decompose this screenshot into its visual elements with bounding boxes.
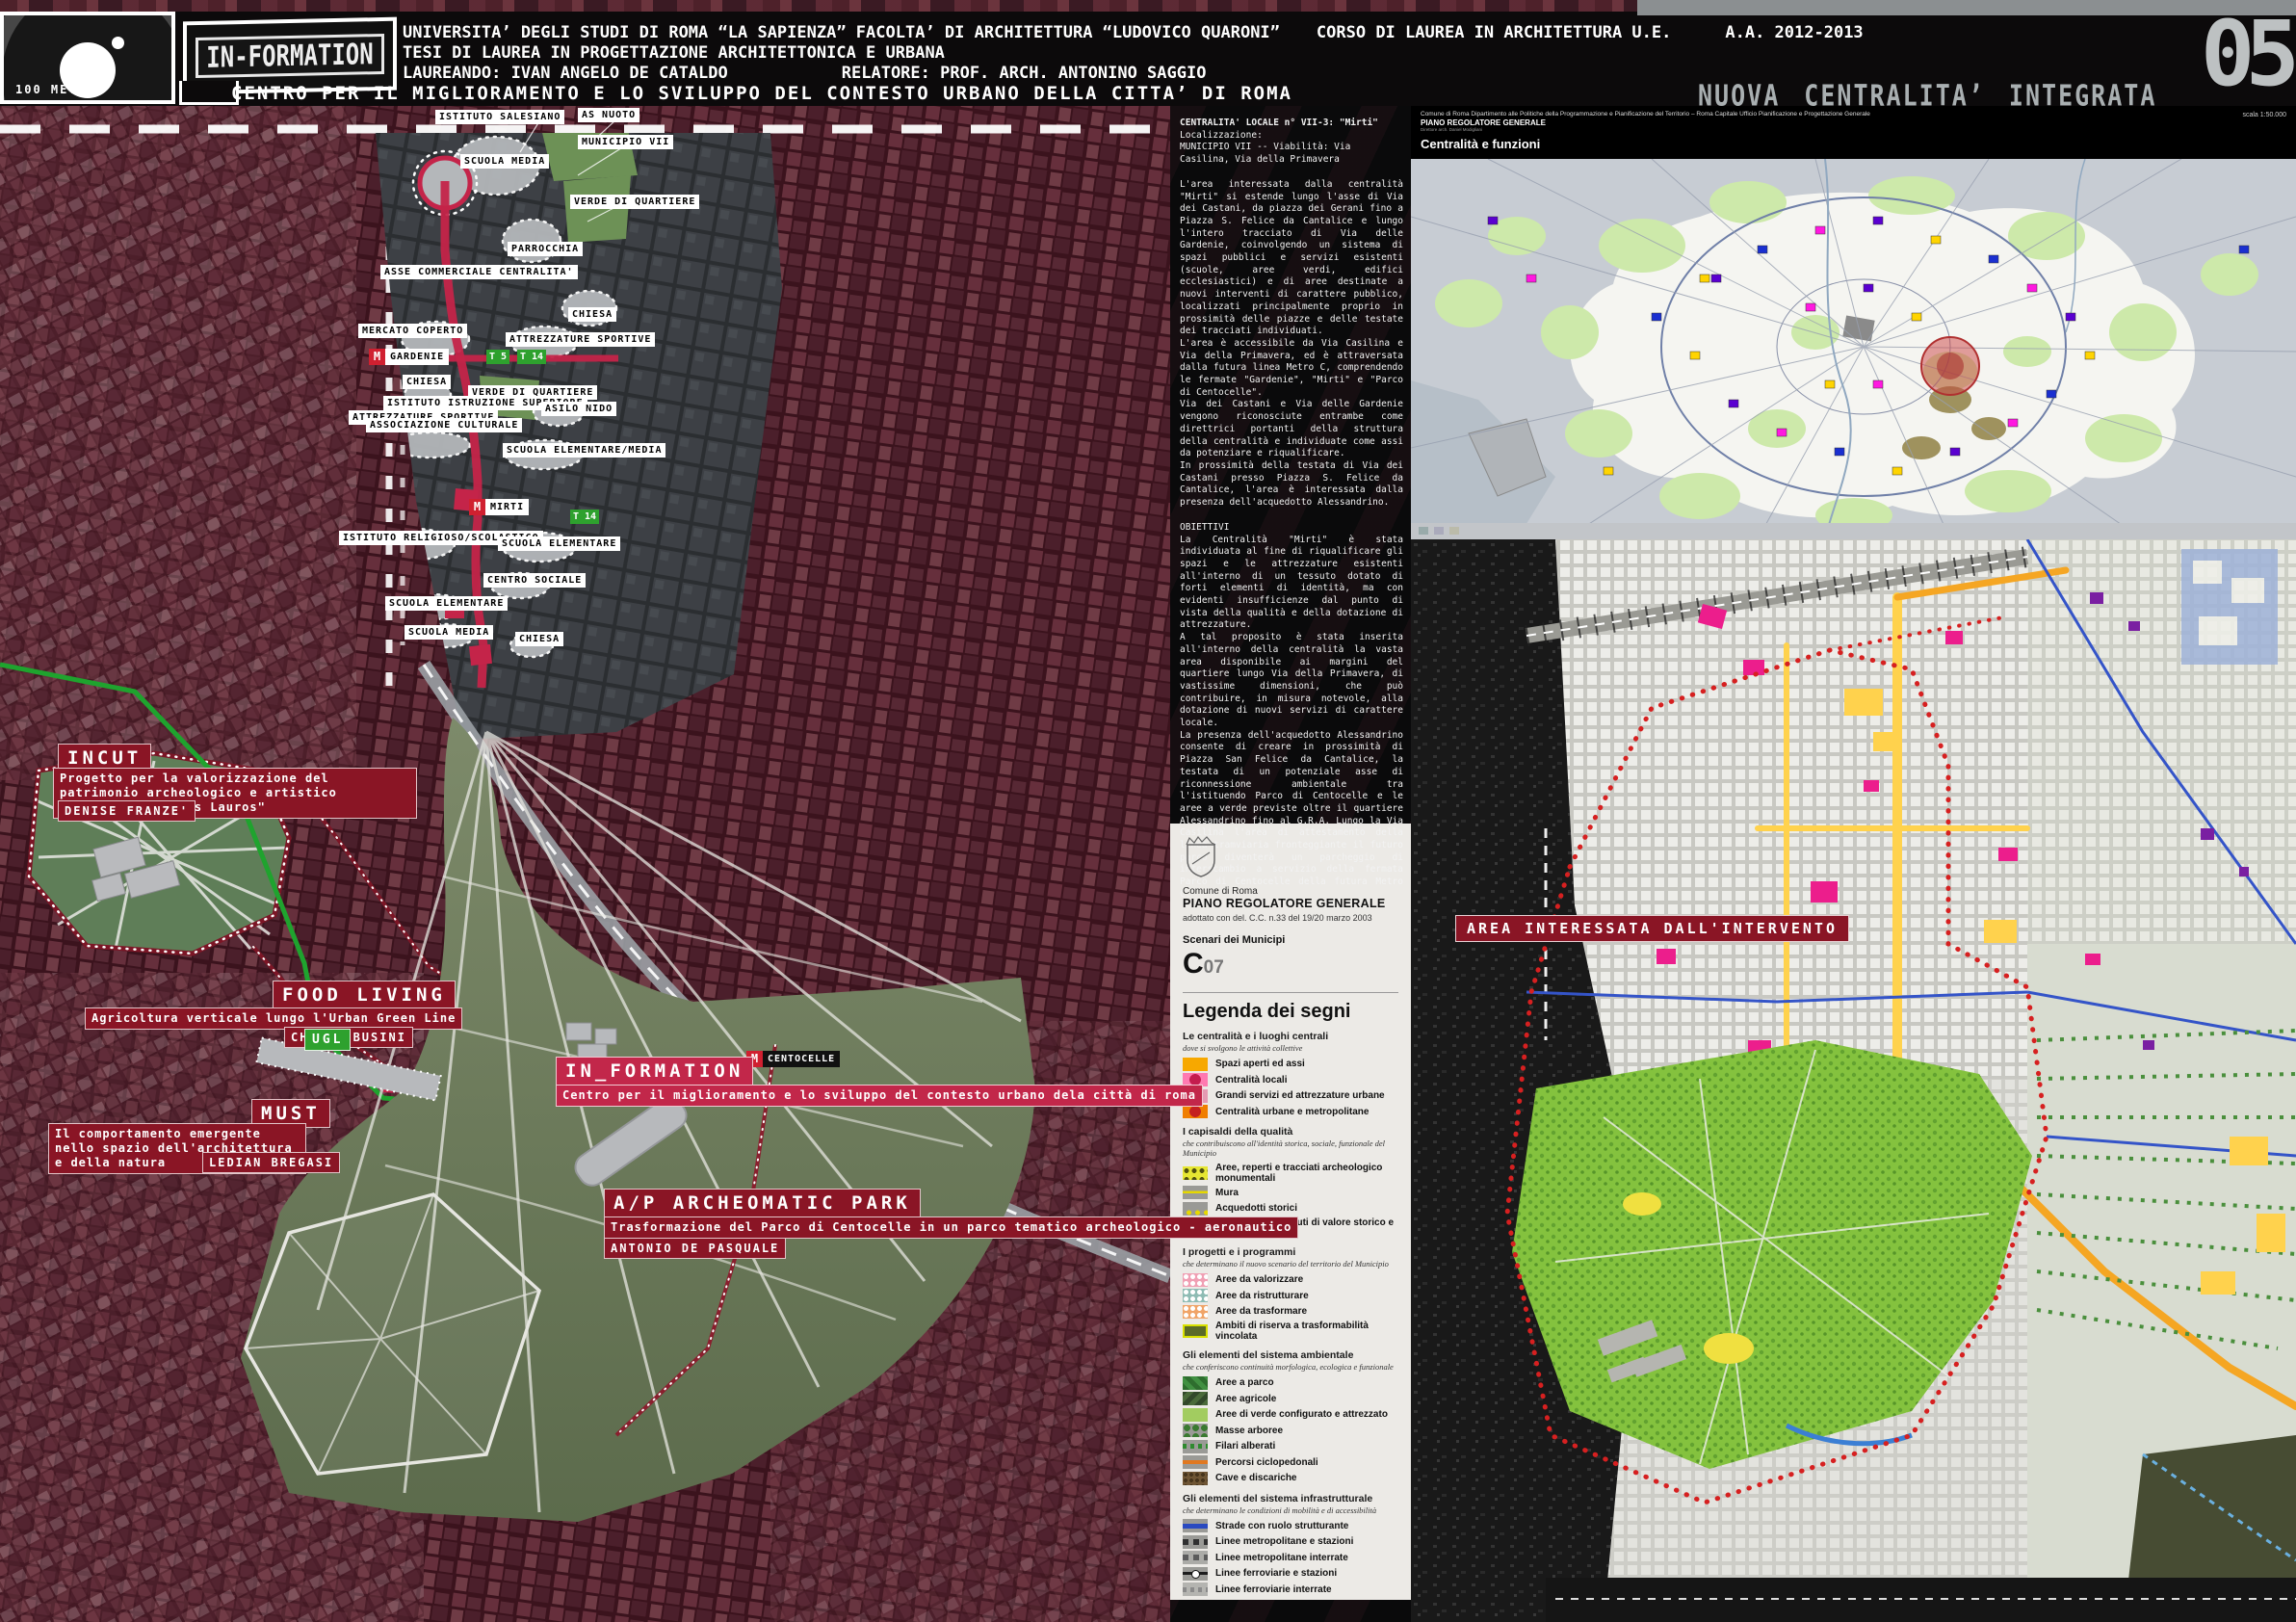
description-paragraph: L'area interessata dalla centralità "Mir… — [1180, 179, 1403, 338]
description-paragraph: L'area è accessibile da Via Casilina e V… — [1180, 338, 1403, 400]
intervention-map-panel: AREA INTERESSATA DALL'INTERVENTO — [1411, 539, 2296, 1622]
legend-label: Aree da valorizzare — [1215, 1274, 1303, 1285]
municipio-line: MUNICIPIO VII -- Viabilità: Via Casilina… — [1180, 142, 1403, 166]
legend-row: Linee metropolitane e stazioni — [1183, 1535, 1398, 1549]
facility-label: SCUOLA ELEMENTARE — [498, 536, 620, 551]
legend-row: Grandi servizi ed attrezzature urbane — [1183, 1089, 1398, 1103]
prg-adoption-note: adottato con del. C.C. n.33 del 19/20 ma… — [1183, 913, 1398, 923]
facility-label: ASSOCIAZIONE CULTURALE — [366, 418, 522, 432]
legend-label: Linee ferroviarie e stazioni — [1215, 1568, 1337, 1579]
tram-stop-marker: T 5 — [486, 350, 509, 364]
legend-label: Aree, reperti e tracciati archeologico m… — [1215, 1163, 1398, 1184]
facility-label: PARROCCHIA — [508, 242, 583, 256]
map-scale-label: 100 METRI — [15, 83, 95, 96]
project-label: UGL — [304, 1029, 351, 1051]
legend-swatch — [1183, 1455, 1208, 1469]
legend-row: Aree da ristrutturare — [1183, 1289, 1398, 1302]
university-title: UNIVERSITA’ DEGLI STUDI DI ROMA “LA SAPI… — [403, 23, 1280, 43]
metro-station-name: GARDENIE — [385, 349, 449, 365]
mirti-highlight — [1921, 337, 1979, 395]
legend-group-subtitle: che determinano il nuovo scenario del te… — [1183, 1259, 1398, 1269]
legend-swatch — [1183, 1105, 1208, 1118]
legend-swatch — [1183, 1166, 1208, 1180]
description-paragraph: La Centralità "Mirti" è stata individuat… — [1180, 535, 1403, 633]
facility-label: MERCATO COPERTO — [358, 324, 467, 338]
legend-label: Masse arboree — [1215, 1426, 1283, 1436]
legend-group-title: I progetti e i programmi — [1183, 1246, 1398, 1258]
legend-label: Mura — [1215, 1188, 1239, 1198]
legend-swatch — [1183, 1472, 1208, 1485]
facility-label: SCUOLA MEDIA — [404, 625, 493, 640]
facility-label: CHIESA — [515, 632, 563, 646]
legend-row: Spazi aperti ed assi — [1183, 1058, 1398, 1071]
legend-row: I capisaldi della qualità che contribuis… — [1183, 1126, 1398, 1160]
facility-label: MUNICIPIO VII — [578, 135, 673, 149]
right-maps-column: Comune di Roma Dipartimento alle Politic… — [1411, 106, 2296, 1622]
academic-year: A.A. 2012-2013 — [1725, 23, 1863, 43]
legend-label: Cave e discariche — [1215, 1473, 1297, 1483]
masterplan-map: ISTITUTO SALESIANOAS NUOTOMUNICIPIO VIIS… — [0, 106, 1170, 1622]
legend-label: Linee metropolitane e stazioni — [1215, 1536, 1353, 1547]
information-logo-text: IN-FORMATION — [206, 38, 373, 75]
header-text: UNIVERSITA’ DEGLI STUDI DI ROMA “LA SAPI… — [403, 23, 2088, 84]
legend-swatch — [1183, 1058, 1208, 1071]
facility-label: VERDE DI QUARTIERE — [570, 195, 699, 209]
legend-row: Linee metropolitane interrate — [1183, 1551, 1398, 1564]
legend-label: Linee metropolitane interrate — [1215, 1553, 1348, 1563]
map-footer-strip — [1411, 523, 2296, 539]
prg-legend-panel: Comune di Roma PIANO REGOLATORE GENERALE… — [1170, 824, 1411, 1600]
legend-group-title: I capisaldi della qualità — [1183, 1126, 1398, 1138]
project-label: ANTONIO DE PASQUALE — [604, 1238, 786, 1259]
legend-swatch — [1183, 1289, 1208, 1302]
legend-group-subtitle: dove si svolgono le attività collettive — [1183, 1043, 1398, 1053]
legend-row: Filari alberati — [1183, 1440, 1398, 1453]
metro-m-icon: M — [369, 349, 385, 365]
legend-row: Aree, reperti e tracciati archeologico m… — [1183, 1163, 1398, 1184]
legend-row: Linee ferroviarie e stazioni — [1183, 1567, 1398, 1581]
project-label: IN_FORMATION — [556, 1057, 753, 1086]
metro-station-name: MIRTI — [485, 499, 529, 515]
project-label: Trasformazione del Parco di Centocelle i… — [604, 1216, 1298, 1239]
facility-label: CHIESA — [403, 375, 451, 389]
legend-row: Ambiti di riserva a trasformabilità vinc… — [1183, 1321, 1398, 1342]
facility-label: SCUOLA ELEMENTARE — [385, 596, 508, 611]
legend-row: Cave e discariche — [1183, 1472, 1398, 1485]
thesis-board: IN-FORMATION UNIVERSITA’ DEGLI STUDI DI … — [0, 0, 2296, 1622]
rome-map-title: Centralità e funzioni — [1421, 137, 2286, 151]
legend-row: Aree a parco — [1183, 1376, 1398, 1390]
legend-label: Grandi servizi ed attrezzature urbane — [1215, 1090, 1385, 1101]
legend-label: Percorsi ciclopedonali — [1215, 1457, 1318, 1468]
legend-swatch — [1183, 1567, 1208, 1581]
municipio-code: C07 — [1183, 948, 1398, 981]
legend-row: Strade con ruolo strutturante — [1183, 1519, 1398, 1532]
legend-swatch — [1183, 1324, 1208, 1338]
description-paragraph: A tal proposito è stata inserita all'int… — [1180, 632, 1403, 730]
facility-label: CENTRO SOCIALE — [483, 573, 586, 588]
rome-map-panel — [1411, 159, 2296, 539]
description-paragraph: OBIETTIVI — [1180, 522, 1403, 535]
legend-row: Linee ferroviarie interrate — [1183, 1583, 1398, 1596]
legend-row: I progetti e i programmi che determinano… — [1183, 1246, 1398, 1270]
legend-label: Aree da ristrutturare — [1215, 1291, 1309, 1301]
legend-swatch — [1183, 1519, 1208, 1532]
metro-station-marker: M CENTOCELLE — [746, 1051, 840, 1067]
legend-row: Aree agricole — [1183, 1392, 1398, 1405]
intervention-map-graphic — [1411, 539, 2296, 1622]
scenari-label: Scenari dei Municipi — [1183, 934, 1398, 946]
facility-label: SCUOLA MEDIA — [460, 154, 549, 169]
advisor-name: RELATORE: PROF. ARCH. ANTONINO SAGGIO — [842, 64, 1207, 84]
legend-label: Filari alberati — [1215, 1441, 1275, 1452]
information-logo-tab — [179, 81, 239, 105]
facility-label: ASSE COMMERCIALE CENTRALITA' — [380, 265, 578, 279]
candidate-name: LAUREANDO: IVAN ANGELO DE CATALDO — [403, 64, 728, 84]
facility-label: ATTREZZATURE SPORTIVE — [506, 332, 655, 347]
legend-swatch — [1183, 1535, 1208, 1549]
project-label: LEDIAN BREGASI — [202, 1152, 340, 1173]
legend-row: Aree di verde configurato e attrezzato — [1183, 1408, 1398, 1422]
footer-swatches — [1419, 527, 1459, 535]
legend-row: Aree da trasformare — [1183, 1305, 1398, 1319]
intervention-area-label: AREA INTERESSATA DALL'INTERVENTO — [1455, 915, 1849, 942]
metro-station-marker: M MIRTI — [469, 499, 529, 515]
legend-row: Mura — [1183, 1186, 1398, 1199]
board-number: 05 — [2201, 10, 2290, 100]
legend-group-title: Gli elementi del sistema ambientale — [1183, 1349, 1398, 1361]
board-subtitle: CENTRO PER IL MIGLIORAMENTO E LO SVILUPP… — [231, 83, 1377, 104]
legend-swatch — [1183, 1440, 1208, 1453]
metro-m-icon: M — [469, 499, 485, 515]
legend-row: Percorsi ciclopedonali — [1183, 1455, 1398, 1469]
legend-title: Legenda dei segni — [1183, 1001, 1398, 1023]
legend-swatch — [1183, 1273, 1208, 1287]
localization-label: Localizzazione: — [1180, 130, 1403, 143]
legend-swatch — [1183, 1392, 1208, 1405]
thesis-type: TESI DI LAUREA IN PROGETTAZIONE ARCHITET… — [403, 43, 945, 64]
legend-label: Acquedotti storici — [1215, 1203, 1297, 1214]
code-number: 07 — [1204, 957, 1224, 978]
prg-title: PIANO REGOLATORE GENERALE — [1183, 897, 1398, 910]
legend-group-subtitle: che contribuiscono all'identità storica,… — [1183, 1138, 1398, 1158]
facility-label: SCUOLA ELEMENTARE/MEDIA — [503, 443, 665, 458]
project-label: FOOD LIVING — [273, 981, 456, 1009]
project-label: A/P ARCHEOMATIC PARK — [604, 1189, 921, 1217]
project-label: Centro per il miglioramento e lo svilupp… — [556, 1085, 1203, 1107]
rome-header-title: PIANO REGOLATORE GENERALE — [1421, 118, 2286, 127]
rome-map-scale: scala 1:50.000 — [2242, 112, 2286, 118]
metro-station-name: CENTOCELLE — [763, 1051, 840, 1067]
legend-label: Strade con ruolo strutturante — [1215, 1521, 1348, 1531]
project-label: DENISE FRANZE' — [58, 800, 196, 822]
legend-row: Gli elementi del sistema infrastruttural… — [1183, 1493, 1398, 1517]
series-title: NUOVA CENTRALITA’ INTEGRATA — [1698, 79, 2156, 113]
rome-header-director: Direttore arch. Daniel Modigliani — [1421, 127, 2286, 132]
legend-swatch — [1183, 1305, 1208, 1319]
course-title: CORSO DI LAUREA IN ARCHITETTURA U.E. — [1317, 23, 1671, 43]
legend-row: Acquedotti storici — [1183, 1202, 1398, 1216]
legend-group-title: Le centralità e i luoghi centrali — [1183, 1031, 1398, 1042]
header-bar: IN-FORMATION UNIVERSITA’ DEGLI STUDI DI … — [0, 0, 2296, 106]
rome-map-header: Comune di Roma Dipartimento alle Politic… — [1411, 106, 2296, 159]
legend-label: Aree da trasformare — [1215, 1306, 1307, 1317]
legend-group-subtitle: che conferiscono continuità morfologica,… — [1183, 1362, 1398, 1372]
legend-row: Centralità locali — [1183, 1073, 1398, 1086]
tram-stop-marker: T 14 — [517, 350, 546, 364]
legend-row: Gli elementi del sistema ambientale che … — [1183, 1349, 1398, 1373]
legend-row: Le centralità e i luoghi centrali dove s… — [1183, 1031, 1398, 1055]
legend-swatch — [1183, 1202, 1208, 1216]
rome-map-graphic — [1411, 159, 2296, 539]
legend-label: Centralità urbane e metropolitane — [1215, 1107, 1369, 1117]
spqr-crest-icon — [1185, 835, 1217, 877]
legend-swatch — [1183, 1376, 1208, 1390]
legend-row: Aree da valorizzare — [1183, 1273, 1398, 1287]
legend-label: Aree agricole — [1215, 1394, 1276, 1404]
legend-label: Linee ferroviarie interrate — [1215, 1584, 1332, 1595]
legend-swatch — [1183, 1408, 1208, 1422]
legend-swatch — [1183, 1424, 1208, 1437]
centrality-description: CENTRALITA' LOCALE n° VII-3: "Mirti" Loc… — [1170, 106, 1411, 824]
legend-label: Centralità locali — [1215, 1075, 1287, 1086]
legend-group-title: Gli elementi del sistema infrastruttural… — [1183, 1493, 1398, 1504]
facility-label: AS NUOTO — [578, 108, 639, 122]
tram-stop-marker: T 14 — [570, 510, 599, 524]
legend-group-subtitle: che determinano le condizioni di mobilit… — [1183, 1505, 1398, 1515]
legend-row: Centralità urbane e metropolitane — [1183, 1105, 1398, 1118]
legend-label: Ambiti di riserva a trasformabilità vinc… — [1215, 1321, 1398, 1342]
code-letter: C — [1183, 948, 1204, 980]
facility-label: ISTITUTO SALESIANO — [435, 110, 564, 124]
facility-label: CHIESA — [568, 307, 616, 322]
legend-label: Aree a parco — [1215, 1377, 1274, 1388]
metro-station-marker: M GARDENIE — [369, 349, 449, 365]
panel-divider — [1183, 992, 1398, 993]
bottom-rail-band — [1546, 1578, 2296, 1622]
facility-label: ASILO NIDO — [541, 402, 616, 416]
legend-label: Aree di verde configurato e attrezzato — [1215, 1409, 1388, 1420]
legend-row: Masse arboree — [1183, 1424, 1398, 1437]
description-paragraph: In prossimità della testata di Via dei C… — [1180, 460, 1403, 510]
legend-swatch — [1183, 1583, 1208, 1596]
legend-swatch — [1183, 1186, 1208, 1199]
info-column: CENTRALITA' LOCALE n° VII-3: "Mirti" Loc… — [1170, 106, 1411, 1622]
header-gray-strip — [1637, 0, 2296, 15]
legend-swatch — [1183, 1551, 1208, 1564]
blue-district — [2181, 549, 2278, 665]
centrality-title: CENTRALITA' LOCALE n° VII-3: "Mirti" — [1180, 118, 1403, 130]
description-paragraph: Via dei Castani e Via delle Gardenie ven… — [1180, 399, 1403, 460]
legend-label: Spazi aperti ed assi — [1215, 1059, 1305, 1069]
